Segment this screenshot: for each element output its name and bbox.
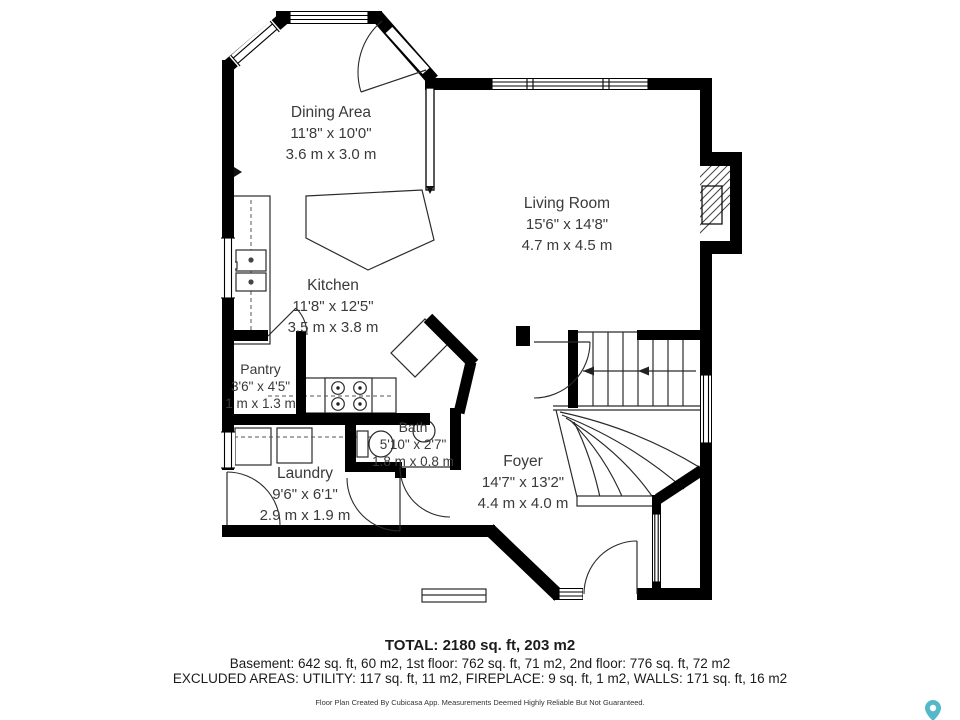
room-label-dining-area: Dining Area 11'8" x 10'0" 3.6 m x 3.0 m	[241, 102, 421, 165]
floor-plan-canvas	[0, 0, 960, 720]
patio-door	[358, 21, 426, 92]
room-dim-imperial: 11'8" x 10'0"	[241, 123, 421, 144]
total-area-text: TOTAL: 2180 sq. ft, 203 m2	[0, 637, 960, 654]
entry-sidelight-window	[559, 589, 583, 599]
kitchen-island	[306, 190, 434, 270]
living-room-window	[492, 79, 648, 89]
room-dim-imperial: 9'6" x 6'1"	[215, 484, 395, 505]
room-label-kitchen: Kitchen 11'8" x 12'5" 3.5 m x 3.8 m	[243, 275, 423, 338]
excluded-areas-text: EXCLUDED AREAS: UTILITY: 117 sq. ft, 11 …	[0, 671, 960, 686]
room-name: Pantry	[203, 361, 318, 378]
living-foyer-door	[534, 342, 590, 398]
dryer-icon	[277, 428, 312, 463]
room-name: Living Room	[477, 193, 657, 214]
room-name: Laundry	[215, 463, 395, 484]
living-foyer-wall	[637, 330, 702, 340]
entry-diagonal-wall	[489, 529, 559, 596]
room-dim-imperial: 11'8" x 12'5"	[243, 296, 423, 317]
pantry-bottom-wall	[222, 414, 308, 425]
bath-corner-wall	[459, 362, 471, 413]
room-dim-metric: 3.5 m x 3.8 m	[243, 317, 423, 338]
bay-window-top	[290, 12, 368, 23]
room-dim-imperial: 15'6" x 14'8"	[477, 214, 657, 235]
bay-window-left	[229, 20, 280, 67]
floor-plan-page: Dining Area 11'8" x 10'0" 3.6 m x 3.0 m …	[0, 0, 960, 720]
room-name: Kitchen	[243, 275, 423, 296]
wall-marker	[234, 167, 242, 177]
wall-stub	[516, 326, 530, 346]
room-name: Dining Area	[241, 102, 421, 123]
room-dim-metric: 4.4 m x 4.0 m	[433, 493, 613, 514]
dining-living-divider	[426, 88, 434, 190]
laundry-bottom-wall	[222, 525, 495, 537]
room-label-pantry: Pantry 3'6" x 4'5" 1 m x 1.3 m	[203, 361, 318, 412]
room-dim-metric: 3.6 m x 3.0 m	[241, 144, 421, 165]
room-dim-metric: 1 m x 1.3 m	[203, 395, 318, 412]
foyer-window	[701, 375, 711, 443]
room-label-foyer: Foyer 14'7" x 13'2" 4.4 m x 4.0 m	[433, 451, 613, 514]
room-name: Bath	[338, 419, 488, 436]
floor-areas-text: Basement: 642 sq. ft, 60 m2, 1st floor: …	[0, 656, 960, 671]
foyer-nook-diagonal	[658, 470, 702, 499]
kitchen-window	[221, 238, 235, 298]
room-dim-metric: 4.7 m x 4.5 m	[477, 235, 657, 256]
room-label-laundry: Laundry 9'6" x 6'1" 2.9 m x 1.9 m	[215, 463, 395, 526]
room-dim-metric: 2.9 m x 1.9 m	[215, 505, 395, 526]
disclaimer-text: Floor Plan Created By Cubicasa App. Meas…	[0, 698, 960, 707]
front-door	[583, 541, 637, 600]
nook-sidelight-window	[653, 514, 660, 582]
washer-icon	[235, 428, 271, 465]
room-name: Foyer	[433, 451, 613, 472]
room-dim-imperial: 3'6" x 4'5"	[203, 378, 318, 395]
room-label-living-room: Living Room 15'6" x 14'8" 4.7 m x 4.5 m	[477, 193, 657, 256]
room-dim-imperial: 14'7" x 13'2"	[433, 472, 613, 493]
